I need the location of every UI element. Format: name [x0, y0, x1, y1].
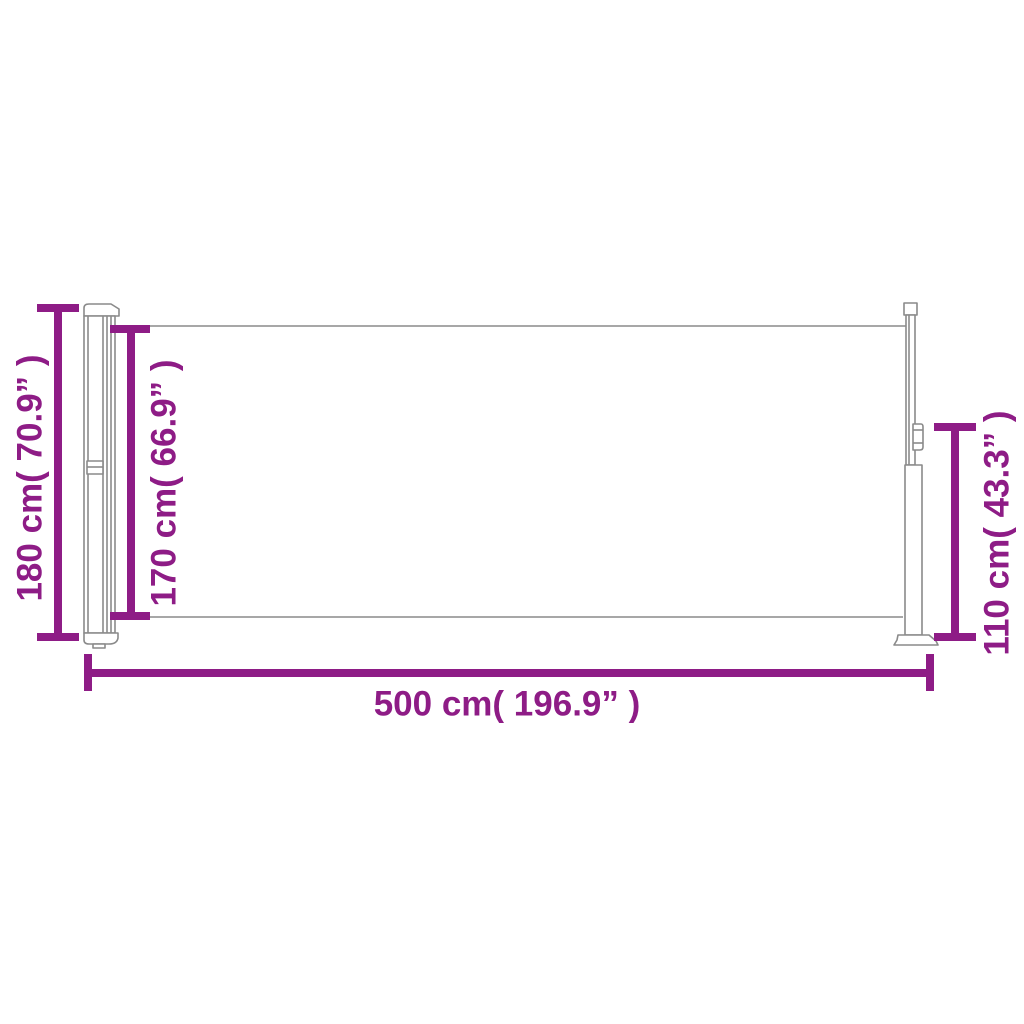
dimension-label-total-width: 500 cm( 196.9” )	[374, 687, 641, 722]
dim-line	[84, 669, 934, 677]
dim-line	[127, 325, 135, 620]
dim-cap	[934, 633, 976, 641]
dim-cap	[110, 612, 150, 620]
right-post-lower-tube	[905, 465, 922, 635]
left-post-foot	[84, 633, 118, 644]
product-dimension-diagram: 180 cm( 70.9” ) 170 cm( 66.9” ) 110 cm( …	[0, 0, 1024, 1024]
dim-line	[951, 423, 959, 641]
left-cassette-post	[84, 304, 119, 648]
dim-line	[54, 304, 62, 641]
dimension-label-total-height: 180 cm( 70.9” )	[13, 354, 48, 601]
right-post-top-cap	[904, 303, 917, 315]
handle-latch	[913, 424, 923, 450]
right-post-foot	[894, 635, 938, 645]
left-post-top-cap	[84, 304, 119, 316]
dim-cap	[37, 633, 79, 641]
right-support-post	[894, 303, 938, 645]
dimension-post-height-110	[934, 423, 976, 641]
dimension-label-post-height: 110 cm( 43.3” )	[980, 410, 1015, 655]
dim-cap	[926, 654, 934, 691]
dimension-label-fabric-height: 170 cm( 66.9” )	[147, 359, 182, 606]
awning-fabric	[115, 326, 906, 617]
